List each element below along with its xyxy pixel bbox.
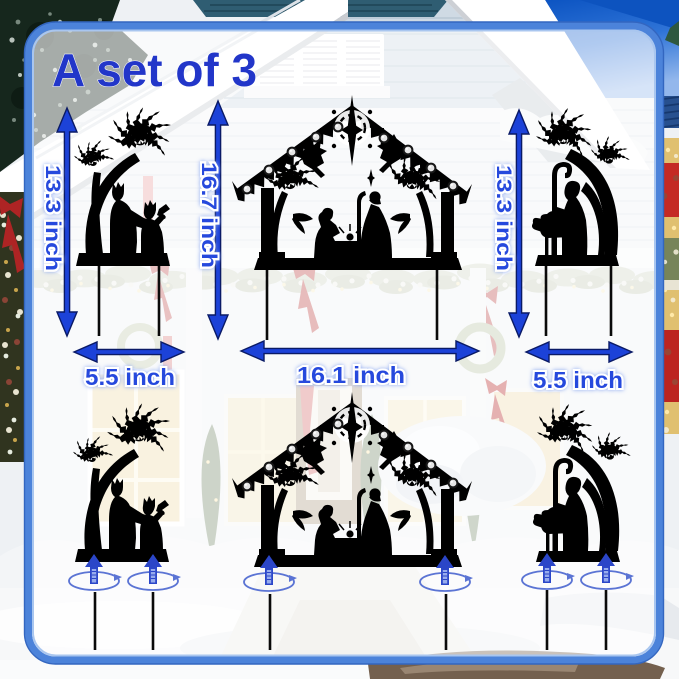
svg-text:5.5 inch: 5.5 inch [533,367,623,393]
svg-text:13.3 inch: 13.3 inch [41,165,64,271]
svg-text:5.5 inch: 5.5 inch [85,364,175,390]
svg-text:16.7 inch: 16.7 inch [197,162,220,268]
svg-text:13.3 inch: 13.3 inch [492,165,515,271]
svg-text:A set of 3: A set of 3 [52,44,257,96]
svg-text:16.1 inch: 16.1 inch [297,362,405,388]
